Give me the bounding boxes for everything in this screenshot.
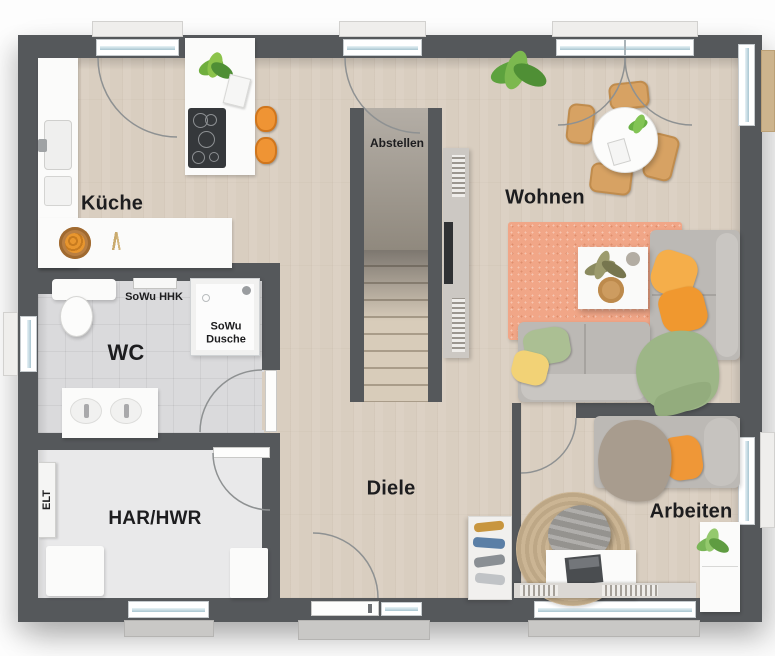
staircase-shadow <box>364 250 428 360</box>
sofa-bottom-cushion-split <box>584 324 586 374</box>
hall-door-sill <box>339 21 426 37</box>
sideboard-books-left <box>520 585 558 596</box>
cooktop-burner-3 <box>198 131 215 148</box>
kitchen-terrace-door <box>96 39 179 56</box>
entry-doorstep <box>298 620 430 640</box>
books-bottom <box>452 298 465 352</box>
label-diele: Diele <box>367 478 416 501</box>
shower-drain <box>202 294 210 302</box>
toilet-bowl <box>60 296 93 337</box>
cooktop-burner-4 <box>192 151 205 164</box>
bar-stool-1 <box>255 106 277 132</box>
har-door-leaf <box>213 447 270 458</box>
office-cabinet-divider <box>702 566 738 567</box>
washing-machine <box>46 546 104 596</box>
label-sowu-hhk: SoWu HHK <box>125 291 183 303</box>
tv-icon <box>444 222 453 284</box>
vanity-faucet-2 <box>124 404 129 418</box>
label-wohnen: Wohnen <box>505 187 585 210</box>
sofa-right-backrest <box>716 233 738 357</box>
office-plant <box>694 526 730 564</box>
kitchen-faucet <box>38 139 47 152</box>
french-door-divider <box>624 40 626 55</box>
shoe-pair-2 <box>473 537 506 549</box>
wohnen-window <box>738 44 755 126</box>
abstellen-floor <box>364 108 428 250</box>
har-window <box>128 601 209 618</box>
cooktop-burner-5 <box>209 152 219 162</box>
vanity-faucet-1 <box>84 404 89 418</box>
bar-stool-2 <box>255 137 277 164</box>
arbeiten-window-sill-r <box>760 432 775 528</box>
wall-wc-right <box>262 263 280 370</box>
kitchen-door-sill <box>92 21 183 37</box>
coffee-table-vase <box>626 252 640 266</box>
arbeiten-window-right <box>738 437 755 525</box>
entry-sidelight <box>381 602 422 616</box>
wc-door-leaf <box>265 370 277 432</box>
floor-plan: Küche WC SoWu HHK SoWu Dusche HAR/HWR EL… <box>0 0 775 656</box>
wall-stairs-left <box>350 108 364 402</box>
label-sowu-dusche: SoWu Dusche <box>196 320 256 345</box>
books-top <box>452 155 465 197</box>
label-kueche: Küche <box>81 193 143 216</box>
label-arbeiten: Arbeiten <box>650 501 733 524</box>
entry-door-handle <box>368 604 372 613</box>
shower-head <box>242 286 251 295</box>
label-wc: WC <box>107 340 144 366</box>
sideboard-books-right <box>602 585 658 596</box>
hhk-radiator <box>133 278 177 289</box>
label-elt: ELT <box>41 490 53 510</box>
decor-twigs <box>92 232 140 250</box>
hall-side-door <box>343 39 422 56</box>
kitchen-sink-basin <box>44 176 72 206</box>
kitchen-sink <box>44 120 72 170</box>
daybed-roll <box>704 418 738 486</box>
wc-window-sill <box>3 312 18 376</box>
wall-stairs-right <box>428 108 442 402</box>
wohnen-window-terrace <box>761 50 775 132</box>
french-door-sill <box>552 21 698 37</box>
label-har-hwr: HAR/HWR <box>108 508 201 530</box>
arbeiten-window-sill-b <box>528 620 700 637</box>
har-window-sill <box>124 620 214 637</box>
har-cabinet <box>230 548 268 598</box>
corner-plant <box>486 46 550 102</box>
fruit-bowl-oranges <box>65 233 85 253</box>
cooktop-burner-2 <box>205 114 217 126</box>
coffee-table-bowl <box>598 277 624 303</box>
toilet-tank <box>52 279 116 300</box>
wc-window <box>20 316 37 372</box>
table-plant <box>626 112 654 140</box>
label-abstellen: Abstellen <box>370 136 424 150</box>
